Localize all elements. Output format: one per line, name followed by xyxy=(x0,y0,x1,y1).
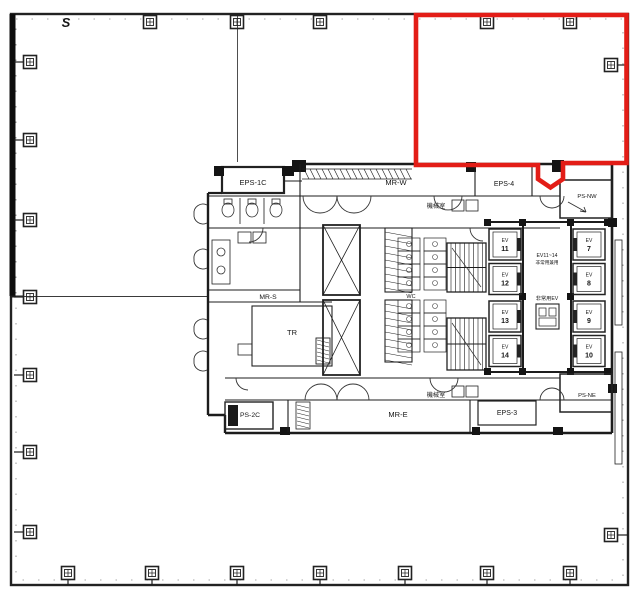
wc-stall xyxy=(398,277,420,290)
wc-stall xyxy=(424,313,446,326)
wc-fixture xyxy=(407,304,412,309)
wc-stall xyxy=(424,300,446,313)
duct-hatch xyxy=(385,353,412,358)
closet-hatch xyxy=(297,421,309,424)
wall-junction-block xyxy=(604,219,611,226)
ev-car-west-3 xyxy=(489,336,521,367)
ev-car-inner xyxy=(577,304,601,329)
utility-box xyxy=(238,344,252,355)
wc-stall xyxy=(424,238,446,251)
ev-door xyxy=(573,310,577,323)
utility-box xyxy=(238,232,251,243)
vent-hatch xyxy=(406,169,411,179)
wall-junction-block xyxy=(472,427,480,435)
ev-car-number: 12 xyxy=(501,281,509,288)
closet-hatch xyxy=(297,425,309,428)
facade-ledge xyxy=(615,352,622,464)
ev-car-number: 13 xyxy=(501,318,509,325)
wc-stall xyxy=(424,339,446,352)
ev-car-prefix: EV xyxy=(586,238,593,244)
double-door-leaf xyxy=(194,351,207,361)
wc-fixture xyxy=(407,330,412,335)
wall-junction-block xyxy=(214,166,224,176)
vent-hatch xyxy=(328,169,333,179)
room-label-tr: TR xyxy=(287,328,298,337)
closet-hatch xyxy=(297,417,309,420)
wc-fixture xyxy=(407,317,412,322)
door-arc xyxy=(305,384,337,400)
door-arc xyxy=(337,384,369,400)
room-label-machine-bottom: 機械室 xyxy=(427,391,446,399)
vent-hatch xyxy=(322,169,327,179)
room-label-eps-1c: EPS-1C xyxy=(239,178,267,187)
section-marker: S xyxy=(62,15,71,30)
ev-door xyxy=(573,345,577,358)
ev-car-prefix: EV xyxy=(586,345,593,351)
duct-hatch xyxy=(385,339,412,344)
ev-car-west-0 xyxy=(489,229,521,260)
ev-car-inner xyxy=(577,267,601,292)
closet-hatch xyxy=(297,413,309,416)
floor-plan-page: EV11EV12EV13EV14EV7EV8EV9EV10 S EPS-1C M… xyxy=(0,0,640,598)
double-door-leaf xyxy=(194,329,207,339)
utility-box xyxy=(466,386,478,397)
wc-fixture xyxy=(433,330,438,335)
vent-hatch xyxy=(346,169,351,179)
ev-car-prefix: EV xyxy=(502,273,509,279)
ev-car-west-1 xyxy=(489,264,521,295)
wc-fixture xyxy=(433,281,438,286)
room-label-eps-3: EPS-3 xyxy=(497,410,517,417)
emergency-ev-icon-cell xyxy=(539,318,556,326)
room-ps-2c-shaft xyxy=(228,405,238,426)
ev-bank-note-line2: 非常用兼用 xyxy=(536,259,559,266)
wc-stall xyxy=(398,264,420,277)
toilet-fixture xyxy=(270,203,282,217)
ev-car-inner xyxy=(493,339,517,364)
wc-stall xyxy=(398,339,420,352)
room-label-machine-top: 機械室 xyxy=(427,202,446,210)
wall-junction-block xyxy=(519,368,526,375)
vent-hatch xyxy=(340,169,345,179)
duct-hatch xyxy=(385,274,412,279)
ev-car-inner xyxy=(577,339,601,364)
double-door-leaf xyxy=(194,361,207,371)
duct-shaft xyxy=(385,300,412,362)
ev-car-prefix: EV xyxy=(586,273,593,279)
door-swing-arrow xyxy=(568,202,586,212)
perimeter-tick-line xyxy=(16,19,623,580)
double-door-leaf xyxy=(194,249,207,259)
room-label-ps-ne: PS-NE xyxy=(578,393,596,399)
vent-hatch xyxy=(316,169,321,179)
room-label-mr-w: MR-W xyxy=(385,178,407,187)
emergency-ev-icon-cell xyxy=(539,308,546,316)
wc-fixture xyxy=(407,268,412,273)
floor-plan: EV11EV12EV13EV14EV7EV8EV9EV10 S EPS-1C M… xyxy=(0,0,640,598)
sink-basin xyxy=(217,248,225,256)
sink-counter xyxy=(212,240,230,284)
wc-stall xyxy=(398,313,420,326)
double-door-leaf xyxy=(194,259,207,269)
room-label-eps-4: EPS-4 xyxy=(494,181,514,188)
double-door-leaf xyxy=(194,319,207,329)
vent-hatch xyxy=(376,169,381,179)
ev-car-number: 14 xyxy=(501,353,509,360)
duct-hatch xyxy=(385,232,412,237)
closet-hatch xyxy=(297,409,309,412)
wc-stall xyxy=(424,326,446,339)
door-arc xyxy=(430,378,458,392)
wc-fixture xyxy=(433,317,438,322)
wall-junction-block xyxy=(292,160,306,172)
wall-junction-block xyxy=(484,219,491,226)
ev-car-number: 10 xyxy=(585,353,593,360)
wall-junction-block xyxy=(553,427,563,435)
ev-car-number: 7 xyxy=(587,246,591,253)
door-arc xyxy=(470,228,483,241)
wc-stall xyxy=(398,300,420,313)
ev-door xyxy=(573,273,577,286)
room-label-ps-nw: PS-NW xyxy=(577,194,597,200)
room-label-ps-2c: PS-2C xyxy=(240,412,260,419)
toilet-fixture xyxy=(246,203,258,217)
duct-hatch xyxy=(385,253,412,258)
facade-ledge xyxy=(615,240,622,325)
wc-fixture xyxy=(433,242,438,247)
ev-car-inner xyxy=(577,232,601,257)
vent-hatch xyxy=(370,169,375,179)
ev-car-prefix: EV xyxy=(502,238,509,244)
ev-car-number: 11 xyxy=(501,246,509,253)
wc-stall xyxy=(424,277,446,290)
duct-hatch xyxy=(385,346,412,351)
door-arc xyxy=(337,196,371,213)
vent-hatch xyxy=(304,169,309,179)
sink-basin xyxy=(217,266,225,274)
ev-door xyxy=(573,238,577,251)
ev-car-number: 8 xyxy=(587,281,591,288)
door-arc xyxy=(236,378,248,390)
vent-hatch xyxy=(352,169,357,179)
wall-junction-block xyxy=(484,368,491,375)
wc-fixture xyxy=(407,281,412,286)
ev-car-east-0 xyxy=(573,229,605,260)
double-door-leaf xyxy=(194,214,207,224)
ev-car-west-2 xyxy=(489,301,521,332)
ev-car-number: 9 xyxy=(587,318,591,325)
ev-bank-note-line1: EV11~14 xyxy=(536,253,557,259)
wc-fixture xyxy=(433,255,438,260)
wc-stall xyxy=(424,264,446,277)
utility-box xyxy=(466,200,478,211)
room-label-mr-s: MR-S xyxy=(259,294,277,301)
door-arc xyxy=(303,196,337,213)
ev-door xyxy=(517,273,521,286)
ev-car-east-1 xyxy=(573,264,605,295)
wall-junction-block xyxy=(519,219,526,226)
duct-hatch xyxy=(385,246,412,251)
closet-hatch xyxy=(297,405,309,408)
ev-door xyxy=(517,345,521,358)
ev-car-inner xyxy=(493,232,517,257)
wall-junction-block xyxy=(567,219,574,226)
wc-fixture xyxy=(433,268,438,273)
room-label-mr-e: MR-E xyxy=(388,410,407,419)
wc-stall xyxy=(424,251,446,264)
ev-car-east-3 xyxy=(573,336,605,367)
duct-hatch xyxy=(385,311,412,316)
ev-car-east-2 xyxy=(573,301,605,332)
ev-car-prefix: EV xyxy=(502,345,509,351)
wc-fixture xyxy=(433,304,438,309)
vent-hatch xyxy=(358,169,363,179)
ev-door xyxy=(517,310,521,323)
vent-hatch xyxy=(334,169,339,179)
vent-hatch xyxy=(364,169,369,179)
ev-car-prefix: EV xyxy=(586,310,593,316)
toilet-fixture xyxy=(222,203,234,217)
ev-car-inner xyxy=(493,267,517,292)
ev-car-inner xyxy=(493,304,517,329)
vent-hatch xyxy=(310,169,315,179)
highlighted-vacant-area xyxy=(416,15,627,188)
duct-shaft xyxy=(385,228,412,292)
room-label-wc: WC xyxy=(406,294,415,300)
double-door-leaf xyxy=(194,204,207,214)
duct-hatch xyxy=(385,318,412,323)
wc-fixture xyxy=(433,343,438,348)
emergency-ev-label: 非常用EV xyxy=(536,294,559,302)
emergency-ev-icon-cell xyxy=(549,308,556,316)
ev-door xyxy=(517,238,521,251)
ev-car-prefix: EV xyxy=(502,310,509,316)
